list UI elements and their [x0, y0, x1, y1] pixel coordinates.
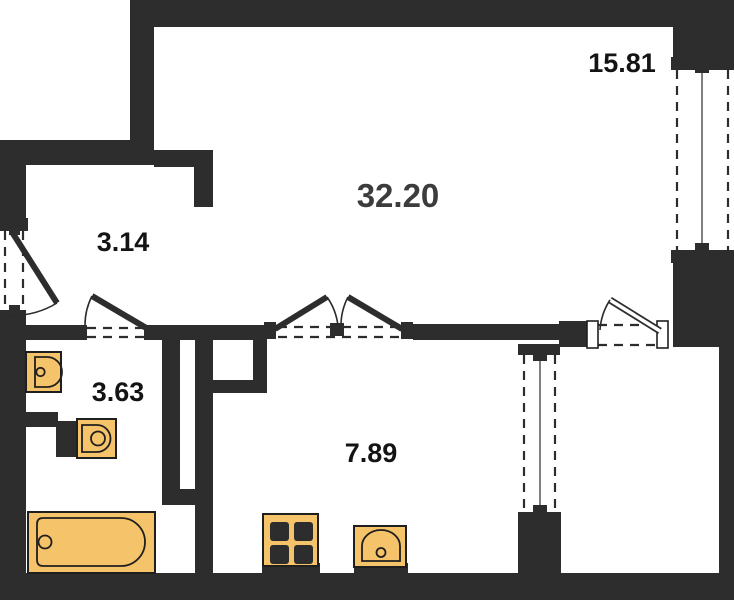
door-leaf-left	[275, 297, 327, 329]
hallway-area-label: 3.14	[97, 227, 150, 257]
floor-plan-canvas: 32.20 15.81 3.14 3.63 7.89	[0, 0, 734, 600]
door-jamb	[587, 321, 598, 348]
bath-door-jamb-left	[74, 325, 87, 340]
door-swing-arc	[341, 297, 348, 326]
floor-plan: 32.20 15.81 3.14 3.63 7.89	[0, 0, 734, 600]
wall-corridor-right	[413, 324, 559, 340]
door-jamb	[657, 321, 668, 348]
wall-bathroom-right	[162, 332, 180, 504]
toilet-tank	[56, 421, 77, 457]
bathroom-door	[85, 296, 148, 337]
bathtub-icon	[28, 512, 155, 573]
kitchen-window-bay	[518, 344, 561, 575]
door-swing-arc	[85, 296, 92, 325]
wall-top	[130, 0, 734, 27]
walls	[0, 0, 734, 600]
entry-stop-block	[9, 305, 20, 312]
stove-burner	[270, 545, 289, 564]
stove-burner	[294, 545, 313, 564]
double-door-center-block	[330, 323, 344, 336]
kitchen-area-label: 7.89	[345, 438, 398, 468]
window-mullion-block	[695, 63, 709, 73]
window-mullion-block	[533, 505, 547, 514]
wall-toilet-stub	[20, 412, 58, 427]
wall-left-upper	[0, 140, 26, 220]
door-leaf	[12, 232, 57, 303]
window-pillar	[518, 523, 561, 575]
wall-bottom	[0, 573, 734, 600]
wall-top-right-block	[673, 25, 734, 59]
door-leaf-inner	[610, 300, 660, 331]
door-swing-arc	[327, 297, 338, 326]
wall-balcony-left	[559, 321, 590, 347]
window-mullion-block	[533, 352, 547, 361]
double-door-jamb-right	[401, 322, 413, 339]
wall-left-lower	[0, 312, 26, 600]
living-area-label: 32.20	[357, 177, 440, 214]
stove-burner	[270, 522, 289, 541]
shaft-wall-bottom	[207, 380, 267, 393]
right-room-area-label: 15.81	[588, 48, 656, 78]
stove-icon	[262, 514, 320, 575]
right-window-bay	[671, 57, 734, 263]
balcony-door	[587, 300, 668, 348]
wall-ledge	[154, 150, 213, 167]
toilet-icon	[56, 419, 116, 458]
entrance-door	[5, 231, 57, 315]
bathtub-body	[28, 512, 155, 573]
wall-kitchen-partition	[195, 332, 213, 600]
door-leaf-right	[348, 297, 402, 329]
door-leaf	[92, 296, 148, 329]
sink-body	[26, 352, 61, 392]
bathroom-sink-icon	[26, 352, 62, 392]
wall-right-lower	[719, 347, 734, 577]
wall-hall-bottom-a	[0, 325, 76, 340]
stove-burner	[294, 522, 313, 541]
bathroom-area-label: 3.63	[92, 377, 145, 407]
kitchen-sink-icon	[354, 526, 408, 575]
window-mullion-block	[695, 243, 709, 253]
wall-right-pillar	[673, 263, 734, 347]
wall-stub	[194, 167, 213, 207]
